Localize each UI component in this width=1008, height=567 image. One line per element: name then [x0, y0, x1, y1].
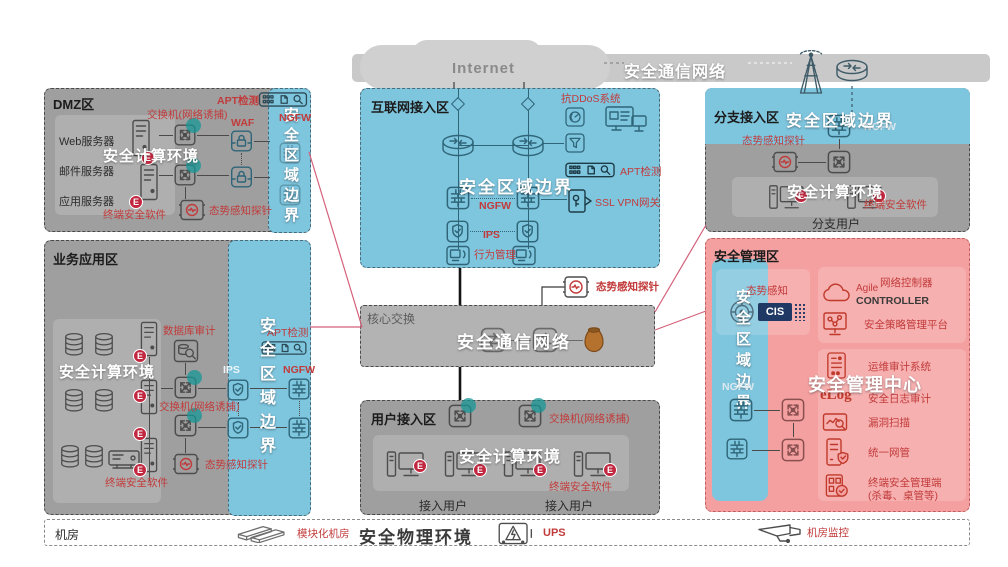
cctv-camera-icon [757, 523, 803, 543]
dmz-apt-label: APT检测 [217, 95, 259, 107]
firewall-icon [722, 437, 752, 461]
honeypot-icon [583, 324, 605, 354]
user-endpoint-label: 终端安全软件 [549, 481, 612, 493]
trap-blob [461, 398, 476, 413]
physical-env-label: 安全物理环境 [359, 523, 473, 548]
server-tower-icon [139, 163, 159, 201]
vuln-scan-icon [822, 411, 848, 433]
internet-label: Internet [452, 60, 515, 77]
mgmt-ngfw-label: NGFW [722, 381, 754, 393]
dmz-boundary-label: 安全区域边界 [280, 107, 301, 227]
dmz-probe-label: 态势感知探针 [209, 205, 272, 217]
trap-blob [187, 370, 202, 385]
endpoint-mgmt-label2: (杀毒、桌管等) [868, 490, 938, 502]
mgmt-console-icon [604, 105, 648, 137]
cis-logo: CIS [758, 303, 792, 321]
zone-dmz: 安全区域边界 DMZ区 APT检测 Web服务器 邮件服务器 应用服务器 E E… [44, 88, 310, 232]
policy-platform-icon [822, 311, 848, 337]
access-user-label: 接入用户 [545, 497, 593, 514]
biz-switch-trap-label: 交换机(网络诱捕) [159, 401, 240, 413]
zone-internet-access: 互联网接入区 抗DDoS系统 安全区域边界 NGFW APT检测 SSL VPN… [360, 88, 660, 268]
net-controller-label: 网络控制器 [880, 277, 933, 289]
biz-compute-env-label: 安全计算环境 [59, 361, 155, 382]
branch-endpoint-label: 终端安全软件 [864, 199, 927, 211]
core-title: 核心交换 [367, 310, 415, 327]
link-node-icon [451, 97, 465, 111]
waf-icon [229, 165, 254, 189]
branch-boundary-label: 安全区域边界 [786, 107, 894, 131]
user-title: 用户接入区 [371, 409, 436, 428]
router-icon [440, 133, 476, 159]
mgmt-center-label: 安全管理中心 [808, 371, 922, 397]
dmz-endpoint-label: 终端安全软件 [103, 209, 166, 221]
room-monitor-label: 机房监控 [807, 527, 849, 539]
zone-core-switch: 核心交换 安全通信网络 [360, 305, 655, 367]
db-audit-icon [173, 339, 199, 363]
cloud-icon [820, 281, 854, 305]
banner-secure-comm-network: Internet 安全通信网络 [352, 54, 990, 82]
core-probe-label: 态势感知探针 [596, 281, 659, 293]
situational-probe-icon [179, 199, 205, 221]
database-icon [93, 331, 115, 358]
biz-boundary-label: 安全区域边界 [253, 317, 277, 461]
apt-detect-icon [258, 92, 308, 107]
database-icon [93, 387, 115, 414]
firewall-icon [287, 416, 311, 440]
modular-room-icon [235, 523, 291, 543]
core-secure-comm-label: 安全通信网络 [457, 328, 571, 353]
dmz-ngfw-label: NGFW [279, 112, 311, 124]
biz-ips-label: IPS [223, 364, 240, 376]
dmz-title: DMZ区 [53, 94, 94, 113]
switch-icon [780, 397, 806, 423]
behavior-mgmt-icon [445, 245, 471, 266]
endpoint-badge: E [129, 195, 143, 209]
inet-behavior-label: 行为管理 [474, 249, 516, 261]
endpoint-mgmt-label: 终端安全管理端 [868, 477, 942, 489]
inet-ips-label: IPS [483, 229, 500, 241]
switch-icon [826, 149, 852, 175]
ups-label: UPS [543, 527, 566, 540]
router-icon [834, 58, 870, 84]
vuln-scan-label: 漏洞扫描 [868, 417, 910, 429]
dmz-compute-env-label: 安全计算环境 [103, 145, 199, 166]
database-icon [63, 331, 85, 358]
firewall-icon [728, 397, 754, 423]
biz-endpoint-label: 终端安全软件 [105, 477, 168, 489]
ips-icon [515, 219, 540, 244]
biz-db-audit-label: 数据库审计 [163, 325, 216, 337]
ips-icon [226, 378, 250, 402]
access-user-label: 接入用户 [419, 497, 467, 514]
trap-blob [531, 398, 546, 413]
modular-room-label: 模块化机房 [297, 528, 350, 540]
antiddos-gauge-icon [564, 106, 586, 128]
controller-brand: CONTROLLER [856, 295, 929, 307]
machine-room-label: 机房 [55, 526, 79, 543]
agile-brand: Agile [856, 283, 878, 295]
secure-comm-network-label: 安全通信网络 [624, 58, 726, 82]
user-switch-trap-label: 交换机(网络诱捕) [549, 413, 630, 425]
endpoint-mgmt-icon [824, 473, 849, 498]
inet-boundary-label: 安全区域边界 [459, 173, 573, 198]
ups-icon [497, 522, 535, 545]
waf-icon [229, 129, 254, 153]
radio-tower-icon [790, 46, 832, 98]
link-node-icon [521, 97, 535, 111]
endpoint-badge: E [133, 389, 147, 403]
app-server-label: 应用服务器 [59, 193, 114, 209]
security-architecture-diagram: Internet 安全通信网络 安全区域边界 DMZ区 APT检测 Web服务器… [0, 0, 1008, 567]
mgmt-title: 安全管理区 [714, 246, 779, 265]
policy-platform-label: 安全策略管理平台 [864, 319, 948, 331]
endpoint-badge: E [133, 463, 147, 477]
situational-probe-icon [563, 275, 589, 299]
ips-icon [226, 416, 250, 440]
branch-probe-label: 态势感知探针 [742, 135, 805, 147]
branch-title: 分支接入区 [714, 107, 779, 126]
inet-sslvpn-label: SSL VPN网关 [595, 197, 660, 209]
cis-text: CIS [766, 306, 784, 318]
unified-nms-icon [824, 437, 850, 467]
inet-ngfw-label: NGFW [479, 200, 511, 212]
cis-dots [794, 303, 807, 321]
biz-ngfw-label: NGFW [283, 364, 315, 376]
database-icon [83, 443, 105, 470]
situational-probe-icon [173, 453, 199, 475]
endpoint-badge: E [133, 427, 147, 441]
inet-title: 互联网接入区 [371, 97, 449, 116]
branch-user-label: 分支用户 [812, 215, 860, 232]
ips-icon [445, 219, 470, 244]
antiddos-filter-icon [564, 132, 586, 154]
zone-security-mgmt: 安全管理区 安全区域边界 态势感知 CIS NGFW Agile 网络控制器 C… [705, 238, 970, 512]
antiddos-label: 抗DDoS系统 [561, 93, 621, 105]
dmz-waf-label: WAF [231, 117, 254, 129]
dmz-switch-trap-label: 交换机(网络诱捕) [147, 109, 228, 121]
router-icon [510, 133, 546, 159]
user-compute-env-label: 安全计算环境 [361, 443, 659, 467]
unified-nms-label: 统一网管 [868, 447, 910, 459]
dmz-boundary-strip: 安全区域边界 [268, 88, 311, 233]
inet-apt-label: APT检测 [620, 166, 661, 178]
switch-icon [780, 437, 806, 463]
situational-probe-icon [772, 151, 798, 173]
zone-branch-access: 分支接入区 安全区域边界 NGFW 态势感知探针 E E 安全计算环境 终端安全… [705, 88, 970, 232]
zone-business-app: 安全区域边界 业务应用区 E E E E 安全计算环境 数据库审计 交换机(网络… [44, 240, 310, 515]
biz-title: 业务应用区 [53, 249, 118, 268]
biz-probe-label: 态势感知探针 [205, 459, 268, 471]
database-icon [59, 443, 81, 470]
zone-physical-env: 机房 模块化机房 安全物理环境 UPS 机房监控 [44, 519, 970, 546]
zone-user-access: 用户接入区 交换机(网络诱捕) E E E E 安全计算环境 终端安全软件 接入… [360, 400, 660, 515]
firewall-icon [287, 377, 311, 401]
database-icon [63, 387, 85, 414]
